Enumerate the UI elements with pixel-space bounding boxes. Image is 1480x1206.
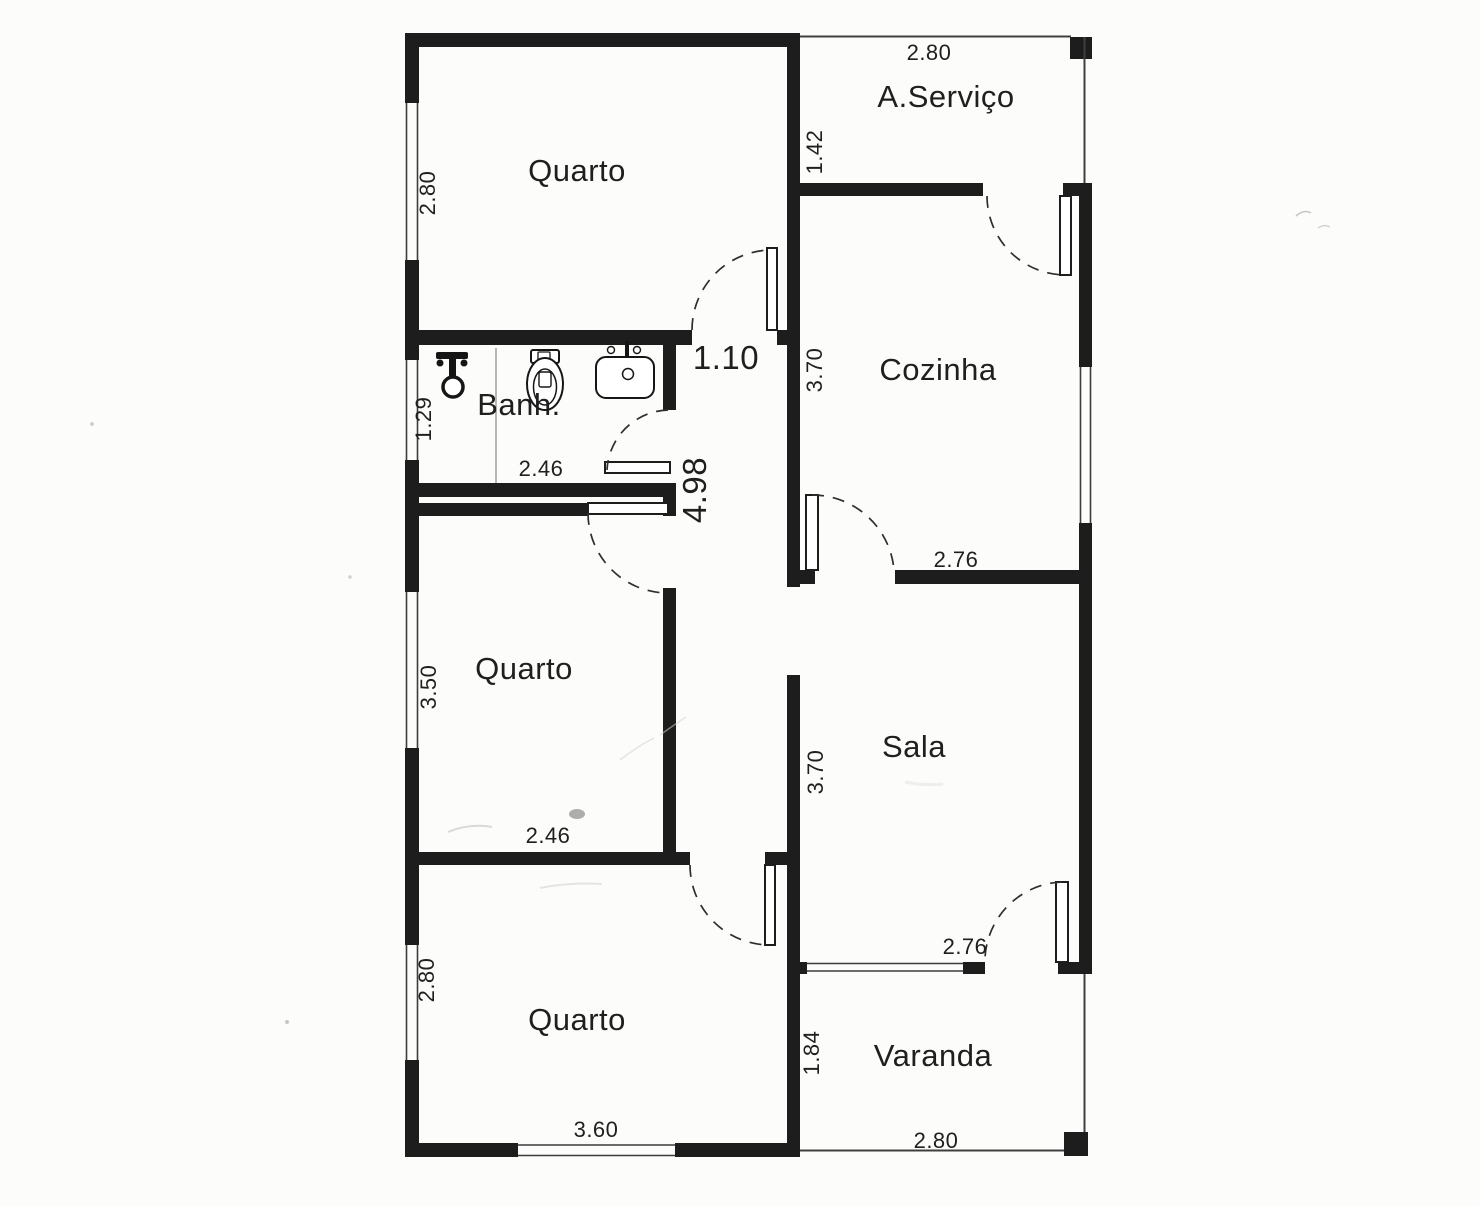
sink-icon (596, 341, 654, 398)
scanned-floor-plan: 2.80 A.Serviço 1.42 Quarto 2.80 Cozinha … (0, 0, 1480, 1206)
room-label-quarto-meio: Quarto (475, 651, 573, 687)
door-sala-varanda (985, 882, 1068, 962)
room-label-servico: A.Serviço (877, 79, 1014, 115)
dim-servico-left: 1.42 (802, 130, 828, 175)
dim-sala-bottom: 2.76 (943, 934, 988, 960)
shower-icon (436, 352, 468, 397)
dim-varanda-bottom: 2.80 (914, 1128, 959, 1154)
column-pillar (1070, 37, 1092, 59)
door-servico-cozinha (987, 196, 1071, 275)
dim-hall-width: 1.10 (693, 339, 759, 377)
dim-cozinha-left: 3.70 (802, 348, 828, 393)
dim-banheiro-left: 1.29 (411, 397, 437, 442)
dim-sala-left: 3.70 (803, 750, 829, 795)
door-quarto-top (692, 248, 777, 330)
dim-quarto-top-left: 2.80 (415, 171, 441, 216)
dim-quarto-baixo-left: 2.80 (414, 958, 440, 1003)
dim-varanda-left: 1.84 (799, 1031, 825, 1076)
room-label-banheiro: Banh. (477, 387, 561, 423)
dim-hall-length: 4.98 (676, 457, 714, 523)
window-cozinha (1081, 367, 1091, 523)
walls (405, 33, 1092, 1157)
floor-plan-canvas (0, 0, 1480, 1206)
room-label-varanda: Varanda (874, 1038, 992, 1074)
room-label-quarto-baixo: Quarto (528, 1002, 626, 1038)
dim-banheiro-bottom: 2.46 (519, 456, 564, 482)
door-banheiro (605, 410, 670, 473)
dim-servico-top: 2.80 (907, 40, 952, 66)
room-label-cozinha: Cozinha (879, 352, 996, 388)
column-pillar (1064, 1132, 1088, 1156)
window-quarto-baixo-bottom (518, 1145, 675, 1156)
door-quarto-baixo (690, 865, 775, 945)
door-quarto-meio (588, 503, 668, 593)
room-label-quarto-top: Quarto (528, 153, 626, 189)
dim-quarto-meio-left: 3.50 (416, 665, 442, 710)
door-cozinha-hall (806, 495, 894, 570)
dim-quarto-baixo-bottom: 3.60 (574, 1117, 619, 1143)
dim-cozinha-bottom: 2.76 (934, 547, 979, 573)
room-label-sala: Sala (882, 729, 946, 765)
windows (407, 103, 1091, 1156)
dim-quarto-meio-bottom: 2.46 (526, 823, 571, 849)
scan-artifacts (90, 212, 1330, 1024)
